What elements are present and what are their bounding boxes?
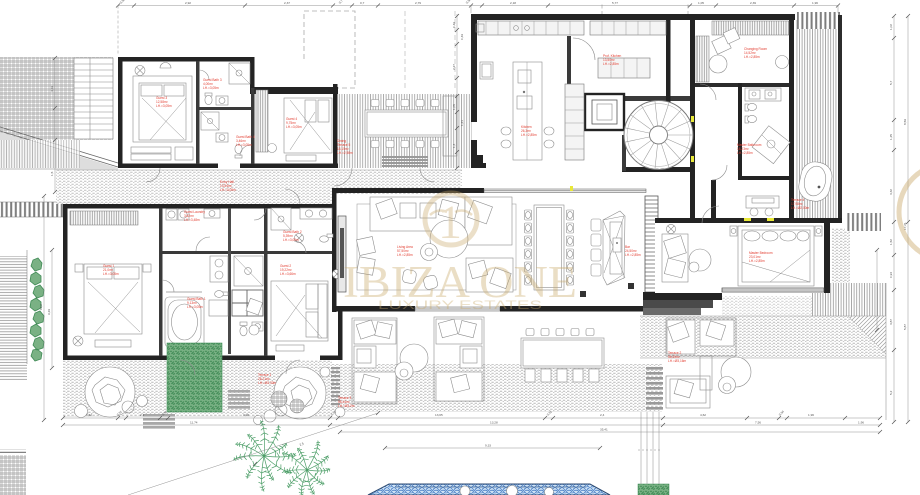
svg-text:9,33: 9,33 xyxy=(485,444,491,448)
svg-text:0,49: 0,49 xyxy=(452,22,456,28)
svg-text:LH.=Ø3,33m: LH.=Ø3,33m xyxy=(258,381,277,385)
svg-text:1,4: 1,4 xyxy=(452,143,456,148)
svg-text:LH.=3,05m: LH.=3,05m xyxy=(203,86,219,90)
svg-text:0,49: 0,49 xyxy=(460,34,464,40)
svg-text:LH.=3,05m: LH.=3,05m xyxy=(236,143,252,147)
svg-text:5,87: 5,87 xyxy=(903,324,907,330)
svg-text:LH.=2,98m: LH.=2,98m xyxy=(337,151,353,155)
svg-text:1,5: 1,5 xyxy=(50,171,54,176)
svg-text:1,05: 1,05 xyxy=(452,104,456,110)
svg-text:2,39: 2,39 xyxy=(750,1,756,5)
svg-text:1,96: 1,96 xyxy=(858,421,864,425)
svg-text:3,98: 3,98 xyxy=(243,413,249,417)
svg-text:2,27: 2,27 xyxy=(452,64,456,70)
svg-text:13,28: 13,28 xyxy=(490,421,498,425)
svg-text:1,21: 1,21 xyxy=(460,120,464,126)
svg-text:LH.=3,05m: LH.=3,05m xyxy=(187,305,203,309)
svg-text:1,96: 1,96 xyxy=(808,413,814,417)
svg-text:LH.=2,85m: LH.=2,85m xyxy=(749,259,765,263)
svg-text:2,37: 2,37 xyxy=(284,1,290,5)
svg-text:0,7: 0,7 xyxy=(360,1,365,5)
svg-text:1,96: 1,96 xyxy=(812,1,818,5)
svg-text:2,18: 2,18 xyxy=(510,1,516,5)
svg-text:5,77: 5,77 xyxy=(612,1,618,5)
svg-text:2,4: 2,4 xyxy=(600,413,605,417)
svg-text:LH.=2,85m: LH.=2,85m xyxy=(737,151,753,155)
svg-text:3,32: 3,32 xyxy=(889,189,893,195)
svg-text:LUXURY ESTATES: LUXURY ESTATES xyxy=(378,300,543,312)
svg-text:LH.=3,05m: LH.=3,05m xyxy=(103,272,119,276)
svg-text:LH.=3,05m: LH.=3,05m xyxy=(220,188,236,192)
svg-text:LH.=2,85m: LH.=2,85m xyxy=(625,253,641,257)
svg-text:LH.=Ø3,16m: LH.=Ø3,16m xyxy=(668,359,687,363)
svg-text:LH.=2,85m: LH.=2,85m xyxy=(744,55,760,59)
svg-text:LH.=3,48m: LH.=3,48m xyxy=(184,218,200,222)
svg-text:2,79: 2,79 xyxy=(415,1,421,5)
svg-text:LH.=2,85m: LH.=2,85m xyxy=(603,62,619,66)
svg-text:LH.=2,85m: LH.=2,85m xyxy=(521,133,537,137)
svg-text:LH.=3,66m: LH.=3,66m xyxy=(280,272,296,276)
svg-text:8,59: 8,59 xyxy=(903,119,907,125)
svg-text:2,92: 2,92 xyxy=(185,1,191,5)
svg-text:11,74: 11,74 xyxy=(190,421,198,425)
svg-text:1,25: 1,25 xyxy=(889,134,893,140)
svg-text:4,62: 4,62 xyxy=(700,413,706,417)
svg-text:35,41: 35,41 xyxy=(600,428,608,432)
svg-text:LH.=3,05m: LH.=3,05m xyxy=(283,238,299,242)
svg-text:0,94: 0,94 xyxy=(889,272,893,278)
svg-text:3,87: 3,87 xyxy=(889,319,893,325)
svg-text:1,02: 1,02 xyxy=(889,24,893,30)
svg-text:9,29: 9,29 xyxy=(47,309,51,315)
svg-text:4,79: 4,79 xyxy=(50,86,54,92)
svg-text:3,52: 3,52 xyxy=(86,413,92,417)
svg-text:1: 1 xyxy=(438,196,462,249)
svg-text:LH.=Ø2,00m: LH.=Ø2,00m xyxy=(791,206,810,210)
svg-text:LH.=3,05m: LH.=3,05m xyxy=(156,104,172,108)
svg-text:1,52: 1,52 xyxy=(889,239,893,245)
svg-text:13,65: 13,65 xyxy=(435,413,443,417)
svg-text:7,56: 7,56 xyxy=(755,421,761,425)
svg-text:5,7: 5,7 xyxy=(889,80,893,85)
svg-text:15,2: 15,2 xyxy=(39,304,43,310)
svg-text:1,05: 1,05 xyxy=(698,1,704,5)
svg-text:LH.=3,05m: LH.=3,05m xyxy=(286,125,302,129)
svg-text:2,2: 2,2 xyxy=(140,413,145,417)
svg-text:5,2: 5,2 xyxy=(889,390,893,395)
svg-text:LH.=Ø3,2m: LH.=Ø3,2m xyxy=(338,404,355,408)
